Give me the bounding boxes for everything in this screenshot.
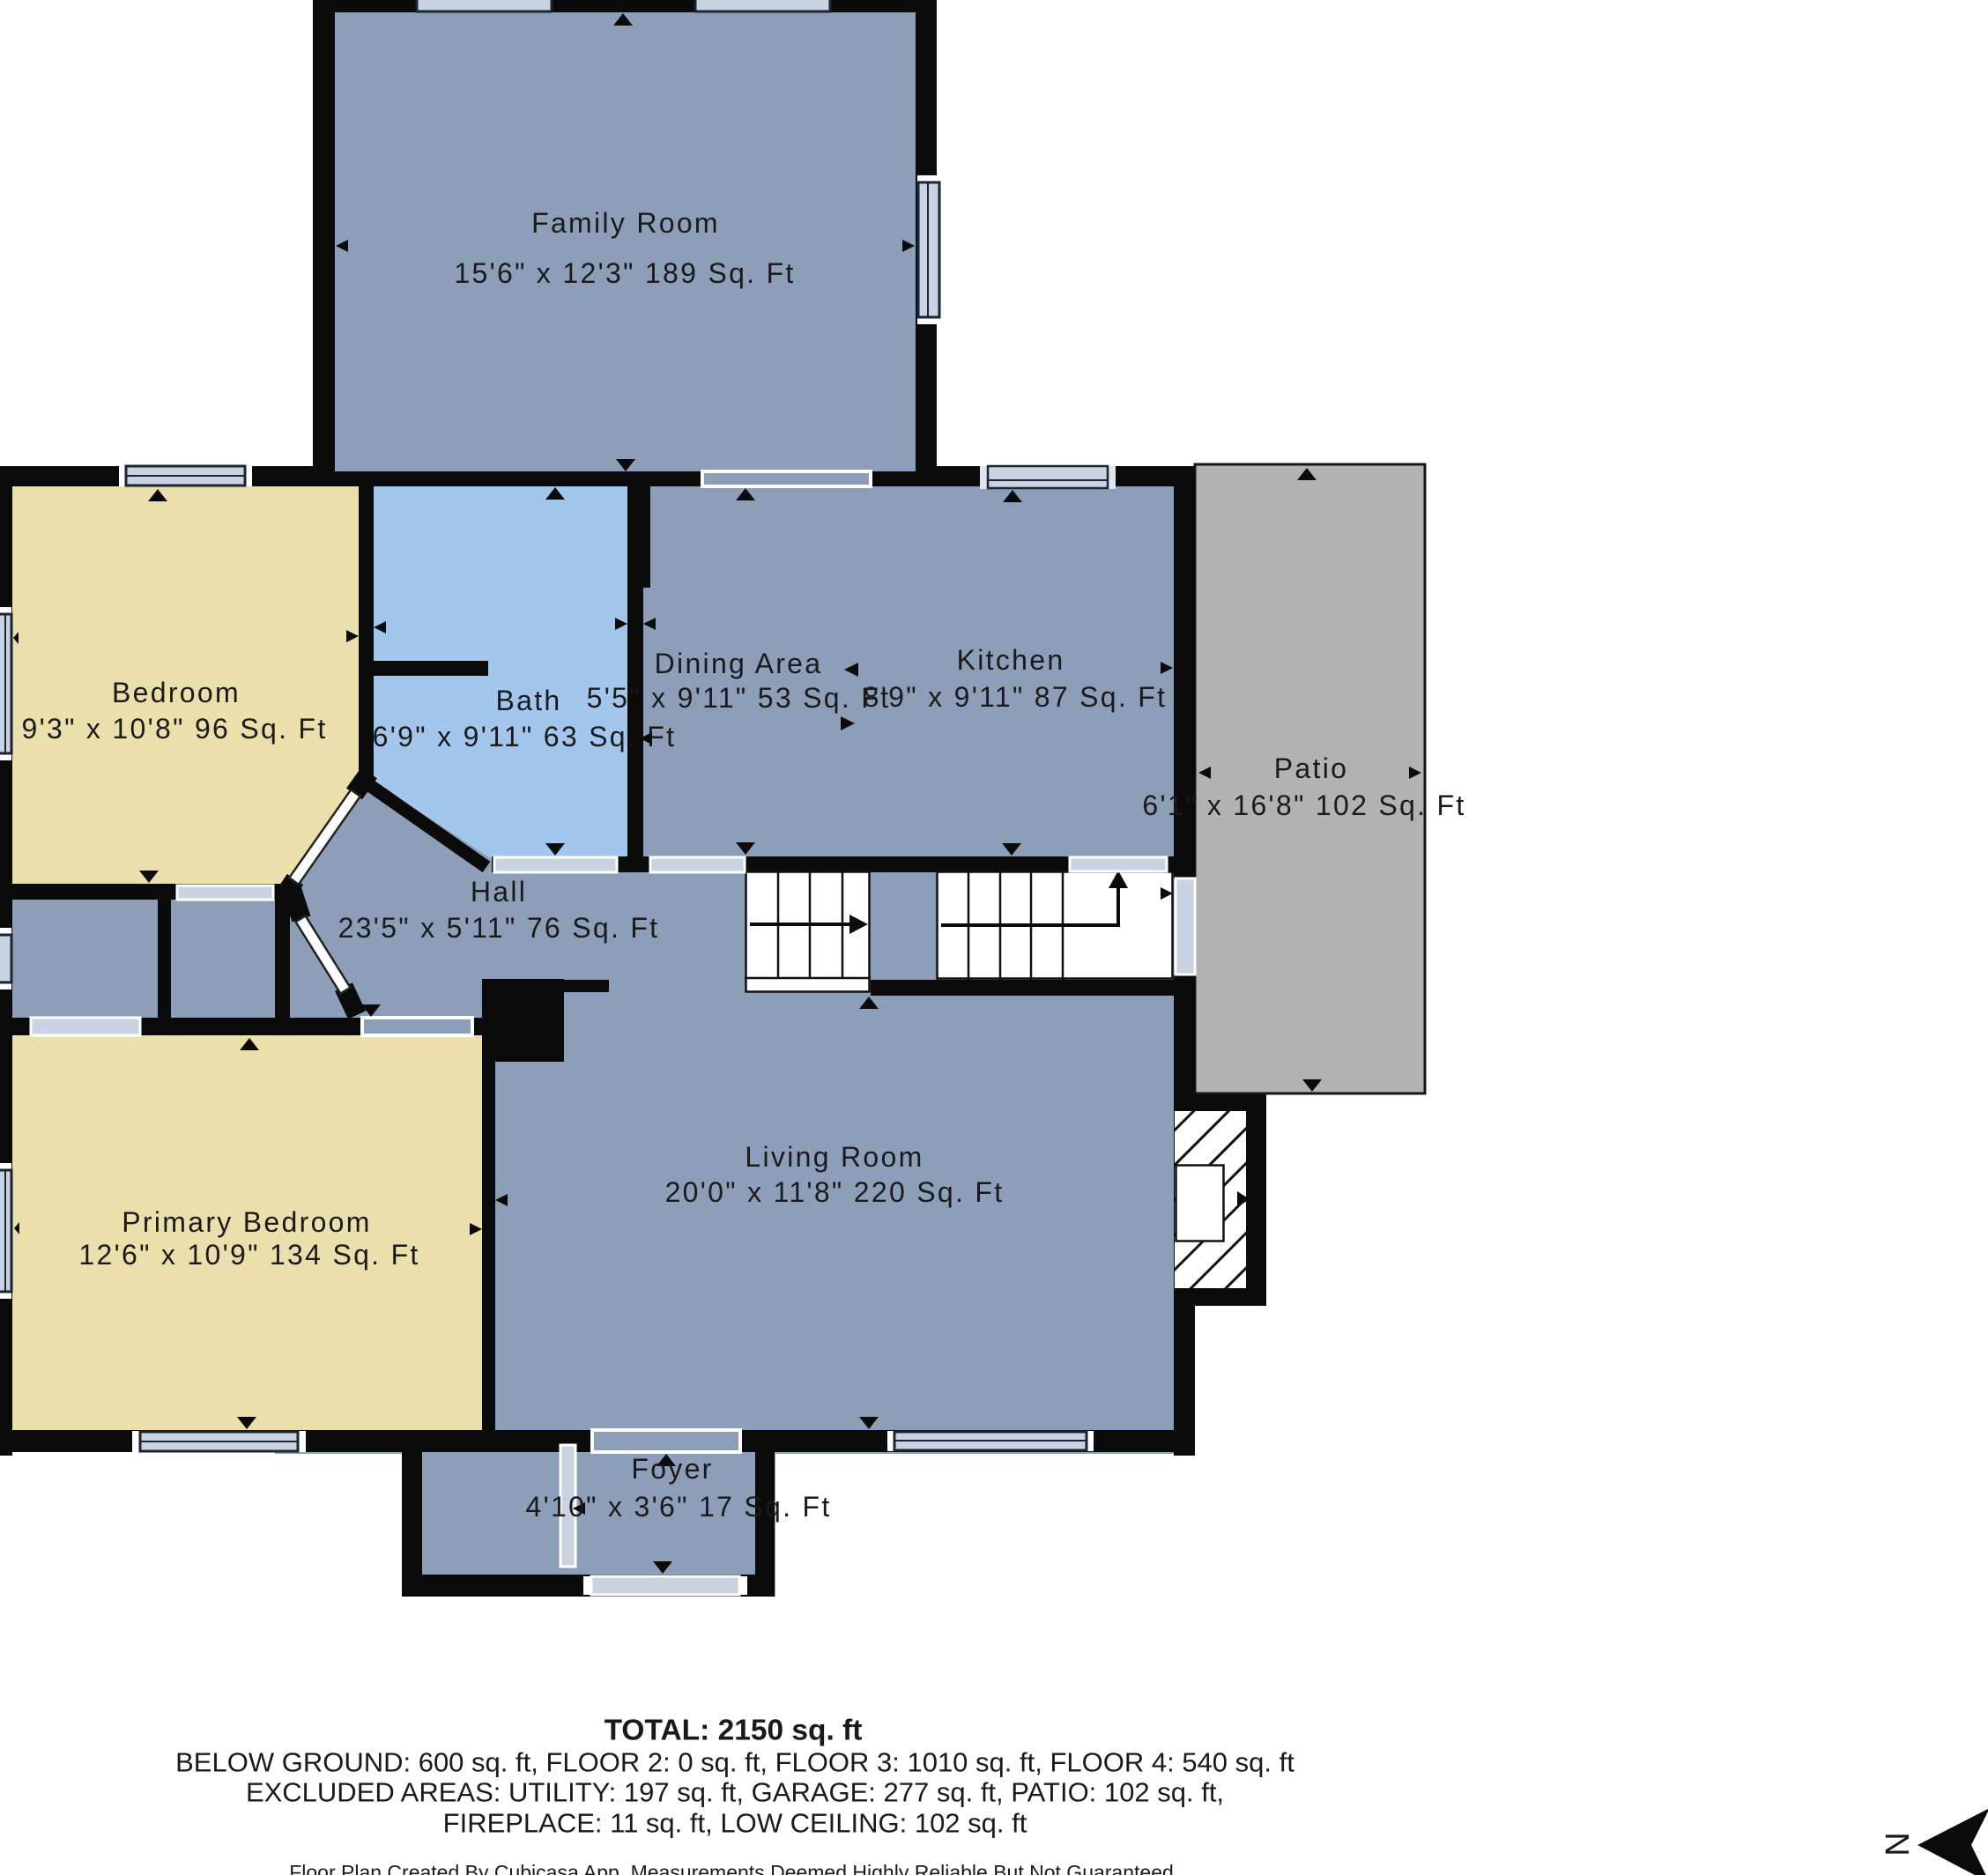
svg-text:Kitchen: Kitchen [957,644,1065,676]
svg-text:Patio: Patio [1274,752,1348,784]
svg-text:15'6" x 12'3" 189 Sq. Ft: 15'6" x 12'3" 189 Sq. Ft [454,257,795,289]
svg-text:20'0" x 11'8" 220 Sq. Ft: 20'0" x 11'8" 220 Sq. Ft [665,1176,1005,1208]
svg-text:Living Room: Living Room [745,1141,924,1173]
svg-text:Family Room: Family Room [531,207,720,239]
svg-text:8'9" x 9'11" 87 Sq. Ft: 8'9" x 9'11" 87 Sq. Ft [864,681,1168,713]
svg-text:BELOW GROUND: 600 sq. ft, FLOO: BELOW GROUND: 600 sq. ft, FLOOR 2: 0 sq.… [175,1747,1294,1778]
svg-text:5'5" x 9'11" 53 Sq. Ft: 5'5" x 9'11" 53 Sq. Ft [587,682,891,714]
svg-text:9'3" x 10'8" 96 Sq. Ft: 9'3" x 10'8" 96 Sq. Ft [21,713,327,745]
svg-text:Bath: Bath [495,685,561,716]
svg-text:N: N [1880,1832,1917,1856]
svg-text:6'9" x 9'11" 63 Sq. Ft: 6'9" x 9'11" 63 Sq. Ft [373,721,677,752]
svg-text:Foyer: Foyer [631,1453,713,1485]
svg-text:4'10" x 3'6" 17 Sq. Ft: 4'10" x 3'6" 17 Sq. Ft [525,1491,831,1523]
svg-text:Primary Bedroom: Primary Bedroom [122,1206,371,1238]
svg-text:23'5" x 5'11" 76 Sq. Ft: 23'5" x 5'11" 76 Sq. Ft [338,912,660,944]
svg-text:Floor Plan Created By Cubicasa: Floor Plan Created By Cubicasa App. Meas… [289,1861,1174,1875]
svg-text:Bedroom: Bedroom [112,677,241,708]
svg-text:Hall: Hall [471,876,527,908]
svg-text:TOTAL: 2150 sq. ft: TOTAL: 2150 sq. ft [605,1715,863,1747]
svg-text:EXCLUDED AREAS: UTILITY: 197 s: EXCLUDED AREAS: UTILITY: 197 sq. ft, GAR… [246,1777,1224,1808]
svg-text:6'1" x 16'8" 102 Sq. Ft: 6'1" x 16'8" 102 Sq. Ft [1142,789,1465,821]
svg-text:12'6" x 10'9" 134 Sq. Ft: 12'6" x 10'9" 134 Sq. Ft [78,1239,419,1271]
svg-text:Dining Area: Dining Area [655,648,823,679]
svg-text:FIREPLACE: 11 sq. ft, LOW CEIL: FIREPLACE: 11 sq. ft, LOW CEILING: 102 s… [443,1808,1027,1839]
